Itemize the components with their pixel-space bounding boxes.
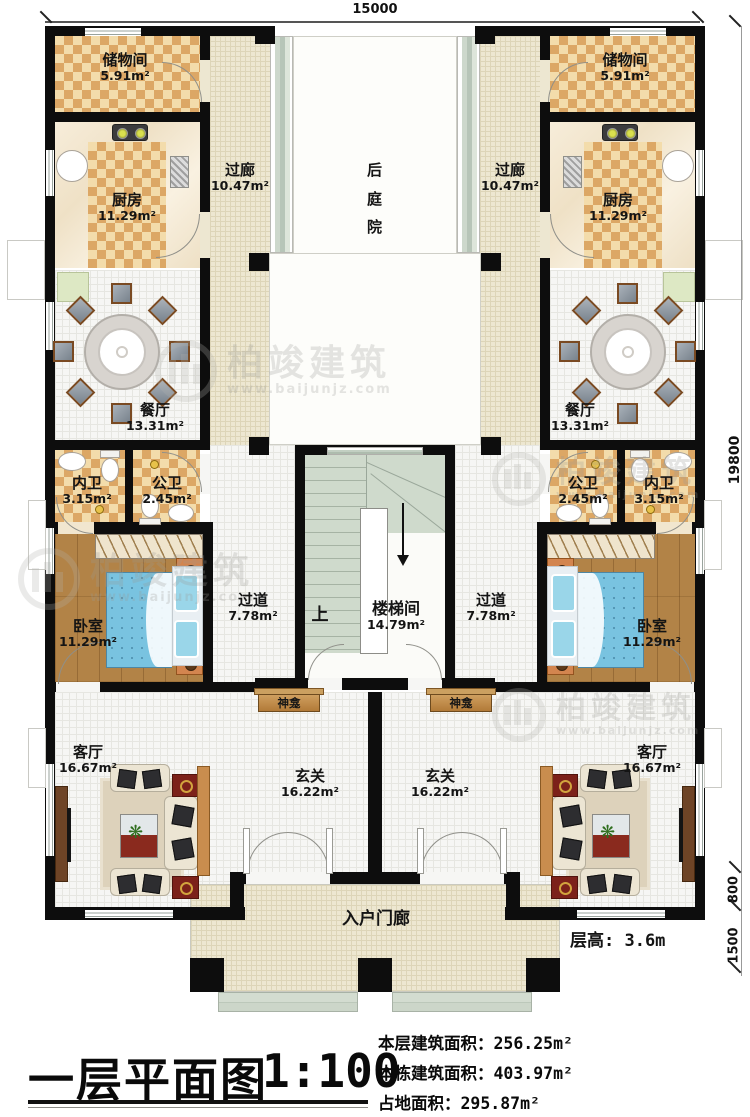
room-name: 楼梯间 [350, 600, 442, 618]
wall [368, 692, 382, 884]
stat-label: 本栋建筑面积： [378, 1060, 494, 1084]
plant: ❋ [128, 822, 143, 843]
dimension-side-value: 19800 [727, 425, 743, 495]
door-jamb [500, 828, 507, 874]
dimension-tick [729, 15, 742, 28]
exterior-box [704, 500, 722, 570]
wall [506, 872, 520, 920]
exterior-box [704, 728, 722, 788]
room-label-dining-left: 餐厅 13.31m² [105, 402, 205, 433]
corridor-floor-left [210, 36, 270, 445]
room-label-bedroom-right: 卧室 11.29m² [606, 618, 698, 649]
room-name: 储物间 [580, 52, 670, 69]
sofa [552, 796, 586, 870]
porch-steps-right [392, 992, 532, 1012]
tv-cabinet-right [682, 786, 695, 882]
wall [45, 26, 263, 36]
toilet-tank [100, 450, 120, 458]
room-area: 11.29m² [606, 635, 698, 649]
room-label-kitchen-left: 厨房 11.29m² [77, 192, 177, 223]
window [610, 28, 666, 36]
bed-blanket-right [578, 573, 604, 667]
room-name: 玄关 [408, 768, 472, 785]
side-table [172, 774, 199, 797]
room-label-inner-bath-right: 内卫 3.15m² [620, 475, 698, 506]
room-area: 2.45m² [128, 492, 206, 506]
toilet-tank [139, 518, 161, 525]
room-area: 5.91m² [580, 69, 670, 83]
pillow [174, 620, 199, 658]
column [481, 253, 501, 271]
room-label-public-bath-right: 公卫 2.45m² [544, 475, 622, 506]
window [696, 302, 704, 350]
chair [559, 341, 580, 362]
room-area: 3.15m² [620, 492, 698, 506]
floor-height-note: 层高: 3.6m [570, 932, 700, 951]
room-label-stairwell: 楼梯间 14.79m² [350, 600, 442, 632]
tv-right [679, 808, 683, 862]
porch-column [190, 958, 224, 992]
porch-column [526, 958, 560, 992]
stair-arrow [402, 503, 404, 555]
wall [382, 872, 420, 884]
wall [330, 872, 368, 884]
tv-left [67, 808, 71, 862]
shrine-right: 神龛 [430, 694, 492, 712]
room-label-living-right: 客厅 16.67m² [616, 744, 688, 775]
room-name: 公卫 [128, 475, 206, 492]
dimension-step-value: 800 [727, 862, 742, 918]
chair [111, 283, 132, 304]
room-label-living-left: 客厅 16.67m² [52, 744, 124, 775]
door-jamb [417, 828, 424, 874]
wardrobe-right [547, 534, 655, 559]
stats-block: 本层建筑面积： 256.25m² 本栋建筑面积： 403.97m² 占地面积： … [378, 1030, 708, 1114]
window [85, 28, 141, 36]
window [46, 764, 54, 856]
floor-drain [591, 460, 600, 469]
window [85, 910, 173, 918]
floor-plan: ❋ ❋ 神龛 神龛 柏竣建筑 www.baijunjz.com [0, 0, 750, 1117]
room-name: 公卫 [544, 475, 622, 492]
chair [617, 283, 638, 304]
room-label-passage-right: 过道 7.78m² [460, 592, 522, 623]
room-area: 10.47m² [478, 179, 542, 193]
room-label-foyer-right: 玄关 16.22m² [408, 768, 472, 799]
bath-sink [168, 504, 194, 522]
door-opening [246, 872, 330, 884]
room-label-courtyard: 后庭院 [363, 156, 387, 242]
column [481, 437, 501, 455]
chair [53, 341, 74, 362]
dimension-line-top [45, 21, 700, 23]
window [696, 528, 704, 574]
window [577, 910, 665, 918]
room-area: 16.67m² [616, 761, 688, 775]
room-name: 内卫 [620, 475, 698, 492]
corridor-floor-right [480, 36, 540, 445]
room-area: 3.15m² [48, 492, 126, 506]
window [46, 150, 54, 196]
stair-up-label: 上 [306, 606, 334, 625]
room-label-porch: 入户门廊 [328, 910, 424, 929]
dining-table-right-center [622, 346, 634, 358]
room-name: 餐厅 [105, 402, 205, 419]
stair-arrow-head [397, 555, 409, 566]
bath-sink [58, 452, 86, 471]
stat-building-area: 本栋建筑面积： 403.97m² [378, 1060, 708, 1084]
stair-window [327, 447, 423, 455]
column [249, 437, 269, 455]
wall [540, 112, 705, 122]
title-underline-thin [28, 1107, 368, 1108]
pillow [174, 574, 199, 612]
room-name: 卧室 [42, 618, 134, 635]
stove-right [602, 124, 638, 141]
room-area: 5.91m² [80, 69, 170, 83]
column [249, 253, 269, 271]
room-area: 7.78m² [460, 609, 522, 623]
chair [169, 341, 190, 362]
room-label-dining-right: 餐厅 13.31m² [530, 402, 630, 433]
title-underline [28, 1100, 368, 1104]
bed-blanket-left [146, 573, 172, 667]
stat-value: 403.97m² [494, 1064, 573, 1083]
floor-drain [150, 460, 159, 469]
room-name: 客厅 [52, 744, 124, 761]
room-label-public-bath-left: 公卫 2.45m² [128, 475, 206, 506]
pillow [551, 574, 576, 612]
room-name: 过道 [222, 592, 284, 609]
column [255, 26, 275, 44]
sofa [110, 868, 170, 896]
room-label-storage-right: 储物间 5.91m² [580, 52, 670, 83]
stair-stem [360, 508, 388, 654]
side-table [172, 876, 199, 899]
room-area: 2.45m² [544, 492, 622, 506]
hall-cabinet-right [540, 766, 553, 876]
passage-floor-left [210, 445, 295, 692]
room-area: 7.78m² [222, 609, 284, 623]
exterior-box [28, 500, 46, 570]
side-table [551, 774, 578, 797]
room-name: 卧室 [606, 618, 698, 635]
door-opening [540, 212, 550, 258]
stat-value: 256.25m² [494, 1034, 573, 1053]
room-name: 餐厅 [530, 402, 630, 419]
kitchen-sink-left [56, 150, 88, 182]
porch-steps-left [218, 992, 358, 1012]
room-name: 厨房 [77, 192, 177, 209]
kitchen-sink-right [662, 150, 694, 182]
stat-footprint: 占地面积： 295.87m² [378, 1090, 708, 1114]
dish-rack-right [563, 156, 582, 188]
room-name: 内卫 [48, 475, 126, 492]
wall [203, 522, 213, 692]
room-area: 11.29m² [568, 209, 668, 223]
room-area: 10.47m² [208, 179, 272, 193]
room-name: 储物间 [80, 52, 170, 69]
room-label-corridor-right: 过廊 10.47m² [478, 162, 542, 193]
window [46, 528, 54, 574]
shrine-label: 神龛 [278, 695, 301, 711]
passage-floor-right [455, 445, 540, 692]
room-label-corridor-left: 过廊 10.47m² [208, 162, 272, 193]
room-area: 16.67m² [52, 761, 124, 775]
wall [445, 445, 455, 690]
room-label-bedroom-left: 卧室 11.29m² [42, 618, 134, 649]
shrine-label: 神龛 [450, 695, 473, 711]
room-area: 14.79m² [350, 618, 442, 632]
room-area: 16.22m² [278, 785, 342, 799]
corridor-glazing-right [457, 36, 480, 253]
room-name: 厨房 [568, 192, 668, 209]
door-jamb [326, 828, 333, 874]
floor-drain [646, 505, 655, 514]
wall [487, 26, 705, 36]
courtyard-lower [269, 253, 481, 445]
room-label-kitchen-right: 厨房 11.29m² [568, 192, 668, 223]
shrine-left: 神龛 [258, 694, 320, 712]
dimension-line-right [741, 26, 742, 976]
room-area: 13.31m² [530, 419, 630, 433]
room-area: 16.22m² [408, 785, 472, 799]
door-jamb [243, 828, 250, 874]
toilet-tank [589, 518, 611, 525]
wall [537, 522, 547, 692]
room-label-passage-left: 过道 7.78m² [222, 592, 284, 623]
bath-sink [556, 504, 582, 522]
hall-cabinet-left [197, 766, 210, 876]
window [696, 764, 704, 856]
dining-table-left-center [116, 346, 128, 358]
room-area: 11.29m² [77, 209, 177, 223]
porch-column [358, 958, 392, 992]
wall [230, 872, 244, 920]
column [475, 26, 495, 44]
dimension-porch-value: 1500 [727, 918, 742, 974]
stat-value: 295.87m² [461, 1094, 540, 1113]
floor-drain [95, 505, 104, 514]
chair [675, 341, 696, 362]
room-area: 13.31m² [105, 419, 205, 433]
exterior-box [705, 240, 743, 300]
room-name: 过道 [460, 592, 522, 609]
exterior-box [28, 728, 46, 788]
corridor-glazing-left [270, 36, 293, 253]
room-name: 过廊 [478, 162, 542, 179]
wall [45, 112, 210, 122]
wall [295, 445, 305, 690]
room-label-inner-bath-left: 内卫 3.15m² [48, 475, 126, 506]
sofa [164, 796, 198, 870]
plant: ❋ [600, 822, 615, 843]
stat-floor-area: 本层建筑面积： 256.25m² [378, 1030, 708, 1054]
toilet-tank [630, 450, 650, 458]
dimension-top-value: 15000 [330, 2, 420, 17]
window [696, 150, 704, 196]
room-area: 11.29m² [42, 635, 134, 649]
wardrobe-left [95, 534, 203, 559]
stat-label: 占地面积： [378, 1090, 461, 1114]
stove-left [112, 124, 148, 141]
room-label-storage-left: 储物间 5.91m² [80, 52, 170, 83]
door-opening [200, 212, 210, 258]
dining-appliance-left [57, 272, 89, 302]
exterior-box [7, 240, 45, 300]
door-opening [420, 872, 504, 884]
bath-sink [664, 452, 692, 471]
room-label-foyer-left: 玄关 16.22m² [278, 768, 342, 799]
pillow [551, 620, 576, 658]
room-name: 客厅 [616, 744, 688, 761]
side-table [551, 876, 578, 899]
room-name: 过廊 [208, 162, 272, 179]
stat-label: 本层建筑面积： [378, 1030, 494, 1054]
sofa [580, 868, 640, 896]
room-name: 玄关 [278, 768, 342, 785]
dish-rack-left [170, 156, 189, 188]
